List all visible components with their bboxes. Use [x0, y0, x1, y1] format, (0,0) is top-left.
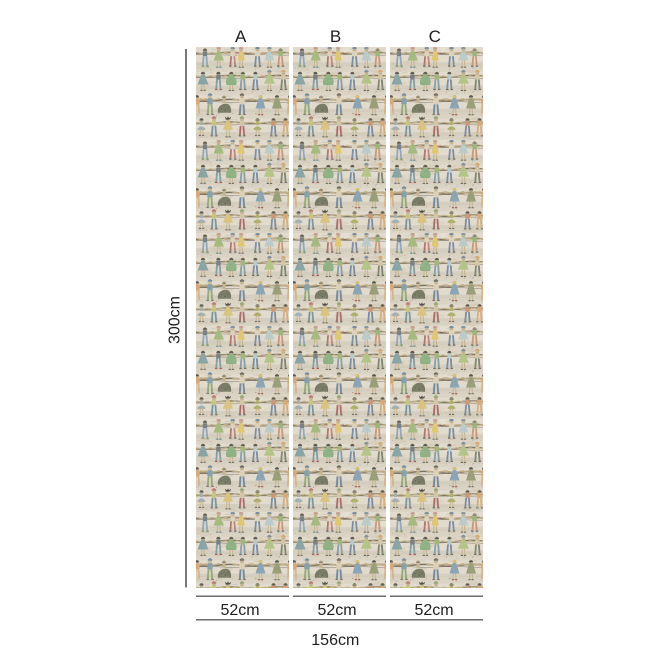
svg-text:300cm: 300cm: [167, 296, 184, 344]
svg-text:A: A: [235, 27, 247, 46]
svg-text:156cm: 156cm: [311, 632, 359, 649]
svg-text:52cm: 52cm: [414, 602, 453, 619]
svg-text:52cm: 52cm: [317, 602, 356, 619]
svg-text:52cm: 52cm: [220, 602, 259, 619]
svg-text:C: C: [429, 27, 441, 46]
svg-text:B: B: [330, 27, 341, 46]
